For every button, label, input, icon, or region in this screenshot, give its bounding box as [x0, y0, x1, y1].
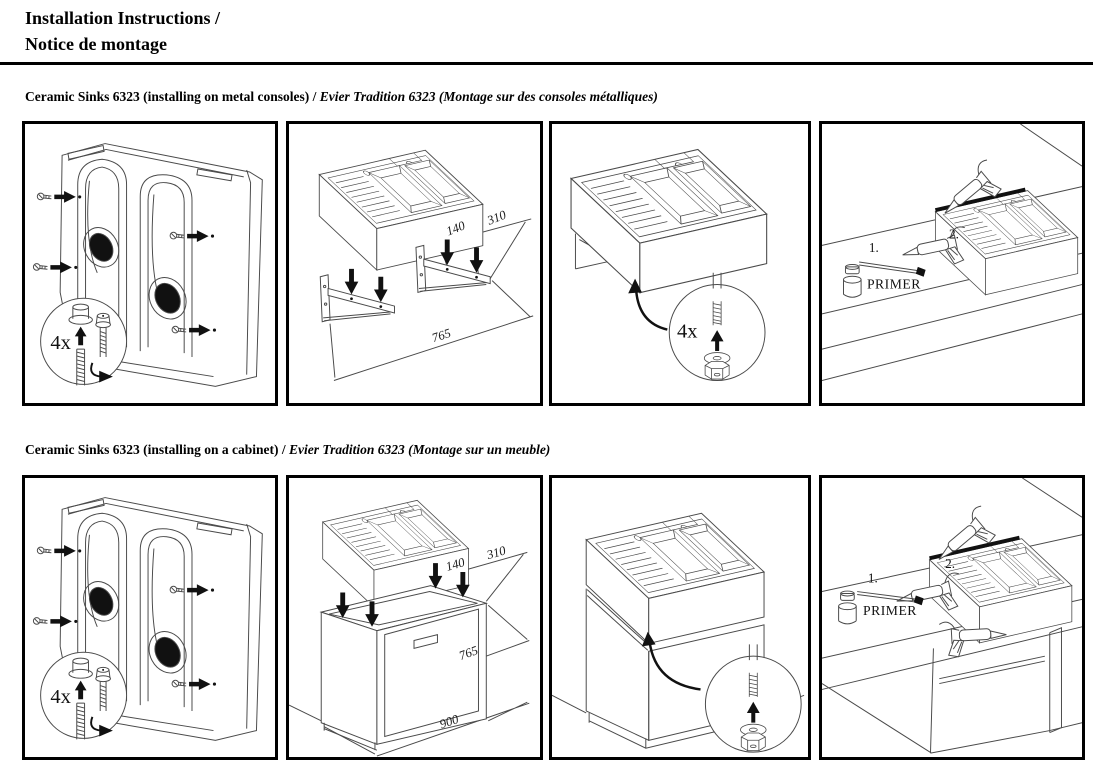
- primer-jar-icon: [839, 591, 857, 624]
- down-arrow-icon: [345, 269, 359, 294]
- panel-sink-underside-1: 4x: [22, 121, 278, 406]
- panel-console-mounting: 140 310 765: [286, 121, 543, 406]
- curved-arrow-icon: [636, 288, 667, 329]
- document-page: Installation Instructions / Notice de mo…: [0, 0, 1093, 771]
- down-arrow-icon: [470, 247, 484, 272]
- drawing-sink-underside: 4x: [25, 478, 275, 757]
- panel-row-metal-consoles: 4x 140 310 7: [22, 121, 1093, 406]
- section-metal-consoles: Ceramic Sinks 6323 (installing on metal …: [0, 89, 1093, 406]
- panel-row-cabinet: 4x: [22, 475, 1093, 760]
- panel-sealing: 1. 2. PRIMER: [819, 121, 1085, 406]
- header-divider: [0, 62, 1093, 65]
- drawing-fastening-detail: 4x: [552, 124, 808, 403]
- panel-fastening-detail-2: [549, 475, 811, 760]
- down-arrow-icon: [374, 277, 388, 302]
- panel-fastening-detail: 4x: [549, 121, 811, 406]
- step-2-label: 2.: [945, 556, 955, 571]
- title-line-1: Installation Instructions /: [25, 5, 1093, 31]
- panel-sealing-2: 1. 2. PRIMER: [819, 475, 1085, 760]
- dimension-310: 310: [484, 543, 508, 562]
- step-1-label: 1.: [868, 571, 878, 586]
- heading-french: Evier Tradition 6323 (Montage sur des co…: [320, 89, 658, 104]
- heading-english: Ceramic Sinks 6323 (installing on a cabi…: [25, 442, 279, 457]
- panel-cabinet-mounting: 140 310 765 900: [286, 475, 543, 760]
- quantity-label: 4x: [50, 686, 70, 708]
- dimension-310: 310: [484, 207, 508, 228]
- drawing-sealing: 1. 2. PRIMER: [822, 478, 1082, 757]
- quantity-label: 4x: [677, 320, 697, 342]
- heading-separator: /: [279, 442, 290, 457]
- step-2-label: 2.: [949, 227, 959, 242]
- primer-label: PRIMER: [867, 276, 921, 291]
- section-heading-cabinet: Ceramic Sinks 6323 (installing on a cabi…: [25, 442, 1093, 458]
- primer-jar-icon: [844, 264, 862, 297]
- primer-label: PRIMER: [863, 603, 917, 618]
- section-cabinet: Ceramic Sinks 6323 (installing on a cabi…: [0, 442, 1093, 760]
- drawing-console-mounting: 140 310 765: [289, 124, 540, 403]
- sink-drawing: [586, 513, 764, 643]
- panel-sink-underside-2: 4x: [22, 475, 278, 760]
- heading-english: Ceramic Sinks 6323 (installing on metal …: [25, 89, 309, 104]
- primer-applicator: [859, 262, 925, 277]
- sink-drawing: [319, 150, 483, 270]
- drawing-cabinet-mounting: 140 310 765 900: [289, 478, 540, 757]
- dimension-765: 765: [430, 326, 452, 345]
- drawing-sealing: 1. 2. PRIMER: [822, 124, 1082, 403]
- document-title: Installation Instructions / Notice de mo…: [0, 0, 1093, 57]
- section-heading-metal-consoles: Ceramic Sinks 6323 (installing on metal …: [25, 89, 1093, 105]
- step-1-label: 1.: [869, 240, 879, 255]
- heading-french: Evier Tradition 6323 (Montage sur un meu…: [289, 442, 550, 457]
- title-line-2: Notice de montage: [25, 31, 1093, 57]
- sink-drawing: [571, 149, 767, 292]
- heading-separator: /: [309, 89, 320, 104]
- quantity-label: 4x: [50, 332, 70, 354]
- drawing-fastening-detail: [552, 478, 808, 757]
- drawing-sink-underside: 4x: [25, 124, 275, 403]
